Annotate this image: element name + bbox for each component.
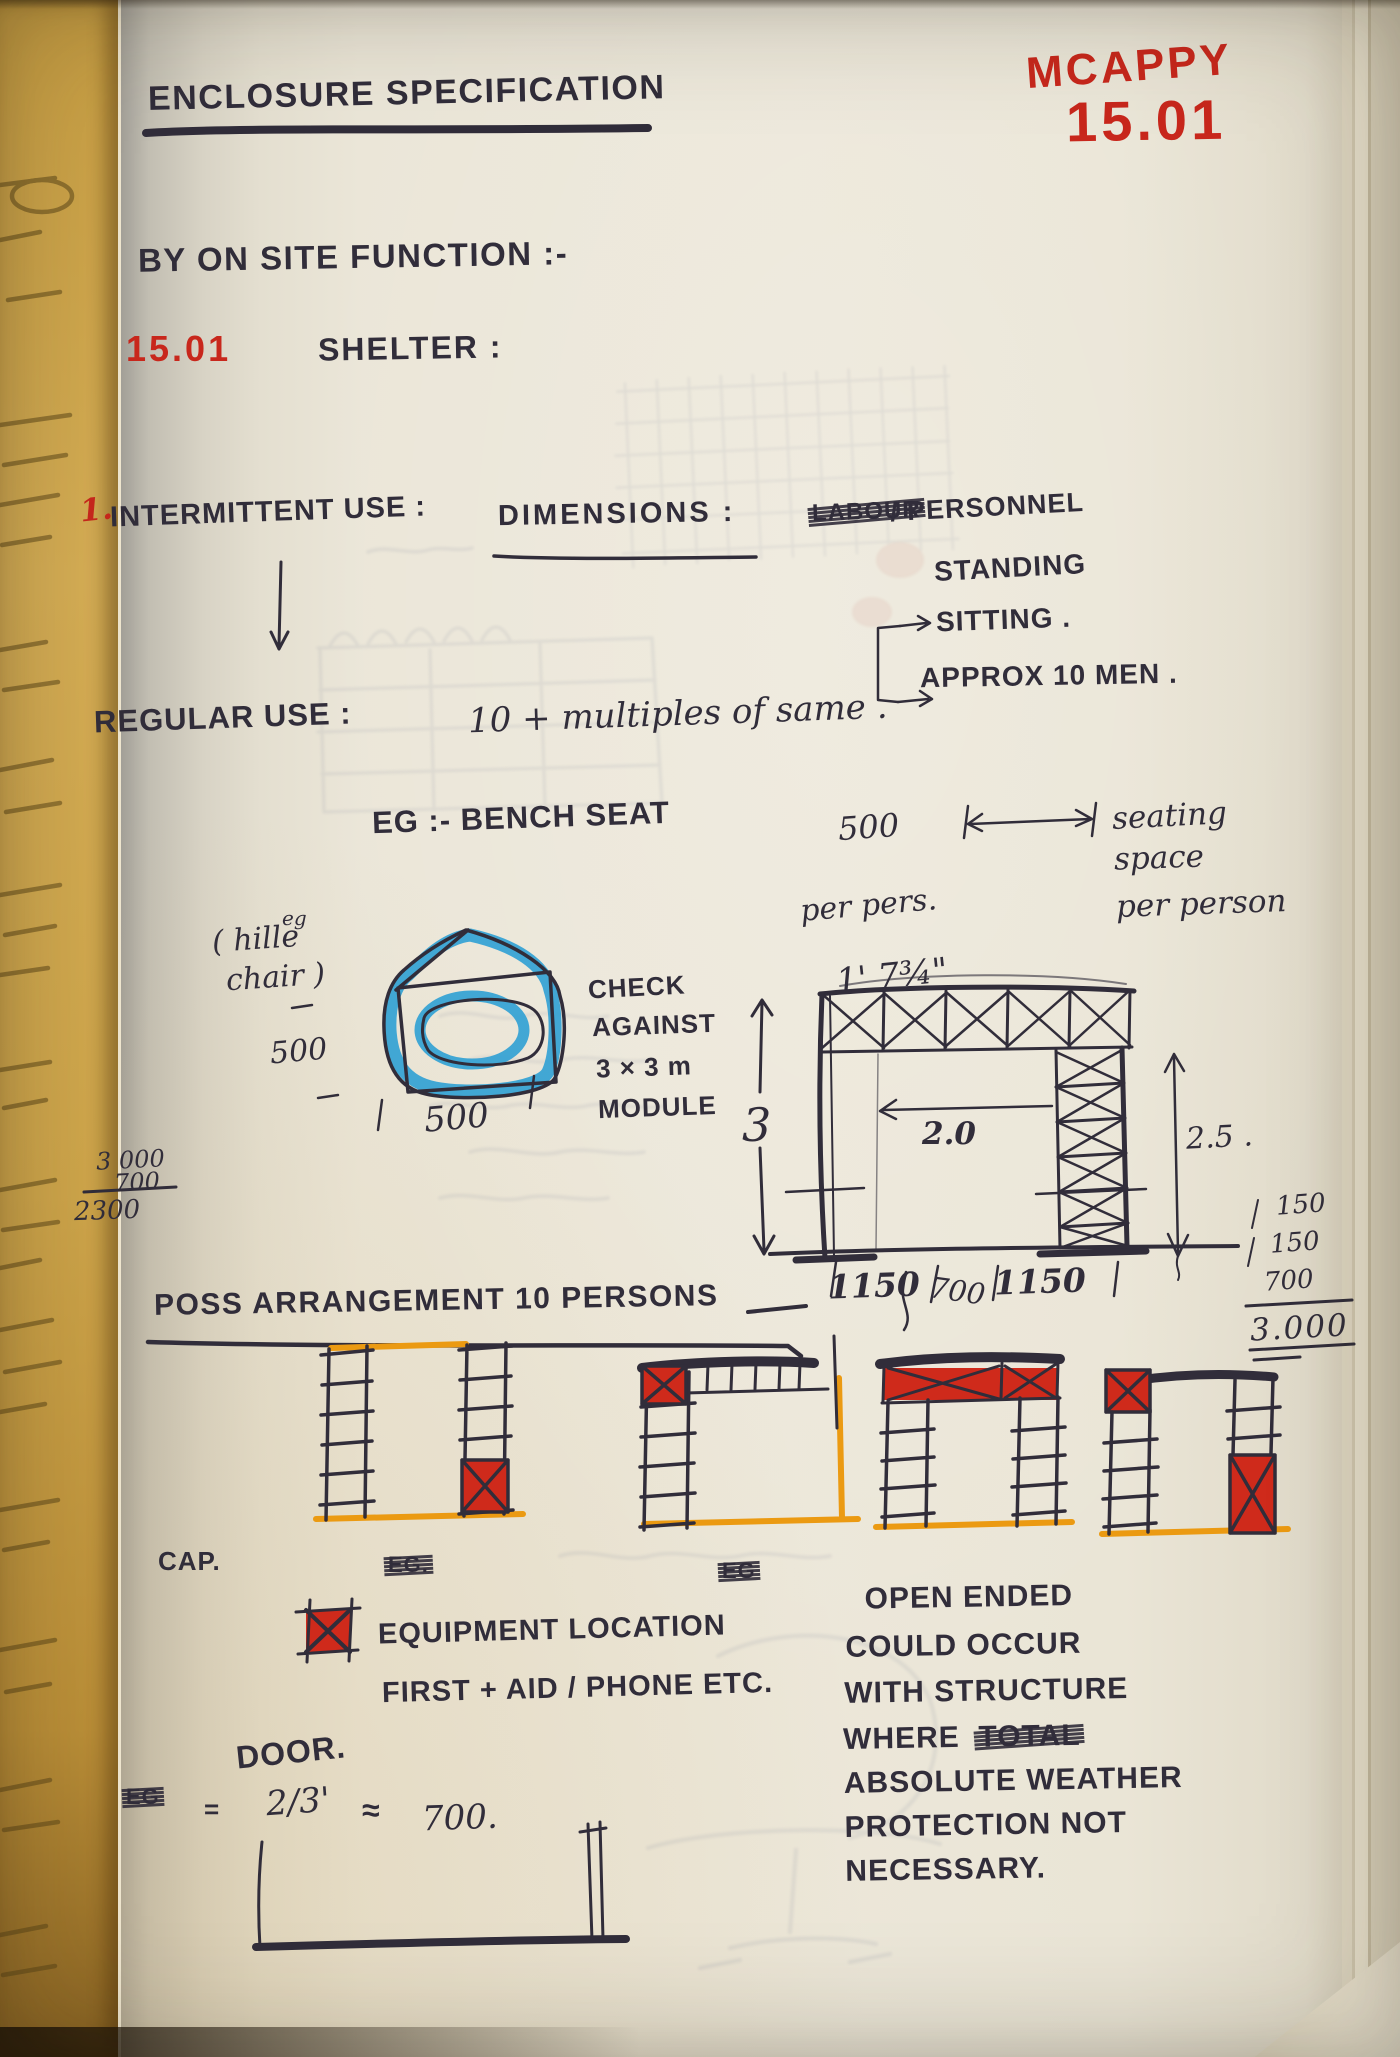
subtitle: BY ON SITE FUNCTION :-	[138, 234, 569, 280]
sum-col-3: 700	[1263, 1264, 1315, 1297]
open-ended-line5: ABSOLUTE WEATHER	[844, 1761, 1183, 1801]
crossed-eg-3: EG	[126, 1784, 160, 1810]
chair-name-1: ( hille	[211, 919, 300, 960]
door-equals: =	[204, 1794, 220, 1825]
approx-label: APPROX 10 MEN .	[920, 658, 1178, 694]
sitting-label: SITTING .	[935, 602, 1071, 639]
item-number: 1.	[78, 490, 114, 529]
door-approx-symbol: ≈	[362, 1792, 381, 1829]
open-ended-line1: OPEN ENDED	[864, 1577, 1179, 1616]
seating-note-3: per person	[1115, 883, 1287, 925]
check-line-3: 3 × 3 m	[595, 1050, 692, 1084]
open-ended-line3: WITH STRUCTURE	[844, 1671, 1181, 1711]
seating-note-2: space	[1113, 838, 1204, 877]
section-number: 15.01	[126, 328, 231, 370]
open-ended-line2: COULD OCCUR	[845, 1625, 1180, 1665]
check-line-1: CHECK	[587, 969, 686, 1005]
stamp-number: 15.01	[1065, 87, 1226, 155]
sum-result: 2300	[73, 1195, 140, 1227]
sum-subtrahend: 700	[113, 1167, 160, 1197]
open-ended-line6: PROTECTION NOT	[844, 1805, 1183, 1845]
bench-dim: 500	[837, 806, 901, 848]
cap-label: CAP.	[158, 1546, 221, 1577]
seating-note-1: seating	[1111, 795, 1228, 837]
bottom-dim-right: 1150	[993, 1260, 1086, 1302]
notebook-photo: ENCLOSURE SPECIFICATION MCAPPY 15.01 BY …	[0, 0, 1400, 2057]
door-sketch	[256, 1822, 626, 1948]
sum-col-1: 150	[1275, 1188, 1327, 1221]
open-ended-line7: NECESSARY.	[845, 1849, 1184, 1889]
top-shadow	[0, 0, 1400, 9]
crossed-total: TOTAL	[978, 1719, 1081, 1755]
down-arrow	[271, 562, 288, 649]
open-ended-note: OPEN ENDED COULD OCCUR WITH STRUCTURE WH…	[840, 1577, 1184, 1889]
chair-dim-bottom: 500	[422, 1095, 490, 1141]
title-underline	[146, 128, 648, 133]
section-label: SHELTER :	[318, 328, 503, 368]
bottom-dim-left: 1150	[827, 1264, 920, 1306]
chair-name-2: chair )	[225, 957, 326, 999]
sum-col-2: 150	[1269, 1226, 1321, 1259]
arrangement-sketch-4	[1102, 1370, 1288, 1534]
door-fraction: 2/3'	[265, 1780, 332, 1824]
legend-equipment-box	[296, 1599, 360, 1662]
seating-dim-arrow	[964, 803, 1096, 838]
check-line-4: MODULE	[597, 1090, 717, 1125]
dimensions-label: DIMENSIONS :	[498, 496, 736, 533]
width-dim-label: 2.0	[922, 1116, 976, 1152]
height-dim-label: 2.5 .	[1185, 1118, 1254, 1156]
door-value: 700.	[421, 1797, 498, 1840]
dimensions-underline	[494, 556, 756, 558]
open-ended-line4: WHERE TOTAL	[843, 1717, 1182, 1757]
crossed-eg-2: EG	[722, 1558, 756, 1584]
arrangement-sketch-2	[640, 1336, 858, 1530]
check-line-2: AGAINST	[591, 1008, 716, 1043]
crossed-eg-1: EG.	[388, 1552, 429, 1578]
bottom-shadow	[0, 2027, 640, 2057]
arrangement-sketch-1	[316, 1343, 523, 1520]
arrangement-sketch-3	[876, 1357, 1072, 1528]
chair-dim-side: 500	[269, 1032, 329, 1072]
module-height-label: 3	[742, 1098, 771, 1152]
sum-total: 3.000	[1249, 1307, 1349, 1348]
old-page-scribbles	[0, 178, 72, 1975]
